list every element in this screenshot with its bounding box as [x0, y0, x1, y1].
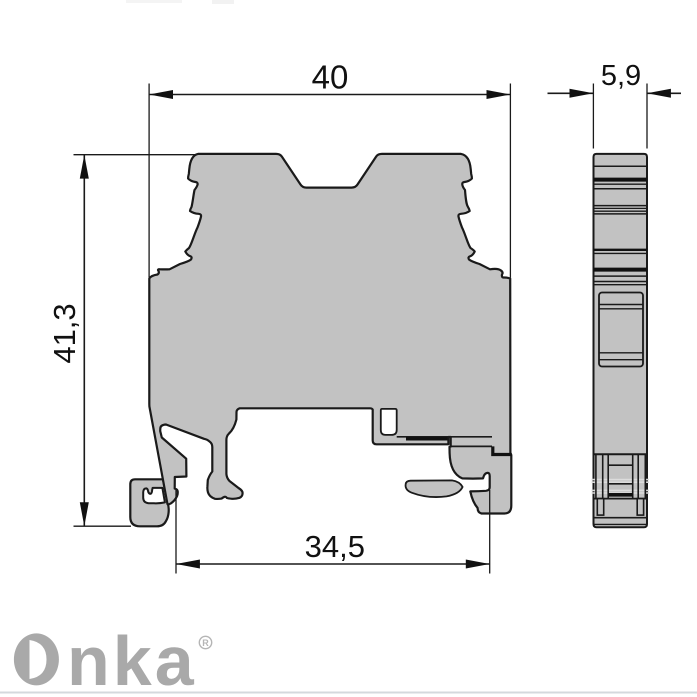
svg-text:34,5: 34,5: [305, 529, 365, 564]
svg-text:41,3: 41,3: [47, 303, 82, 363]
svg-text:nka: nka: [67, 622, 197, 697]
svg-text:R: R: [202, 638, 209, 648]
svg-text:5,9: 5,9: [601, 60, 641, 92]
svg-text:40: 40: [312, 59, 349, 96]
